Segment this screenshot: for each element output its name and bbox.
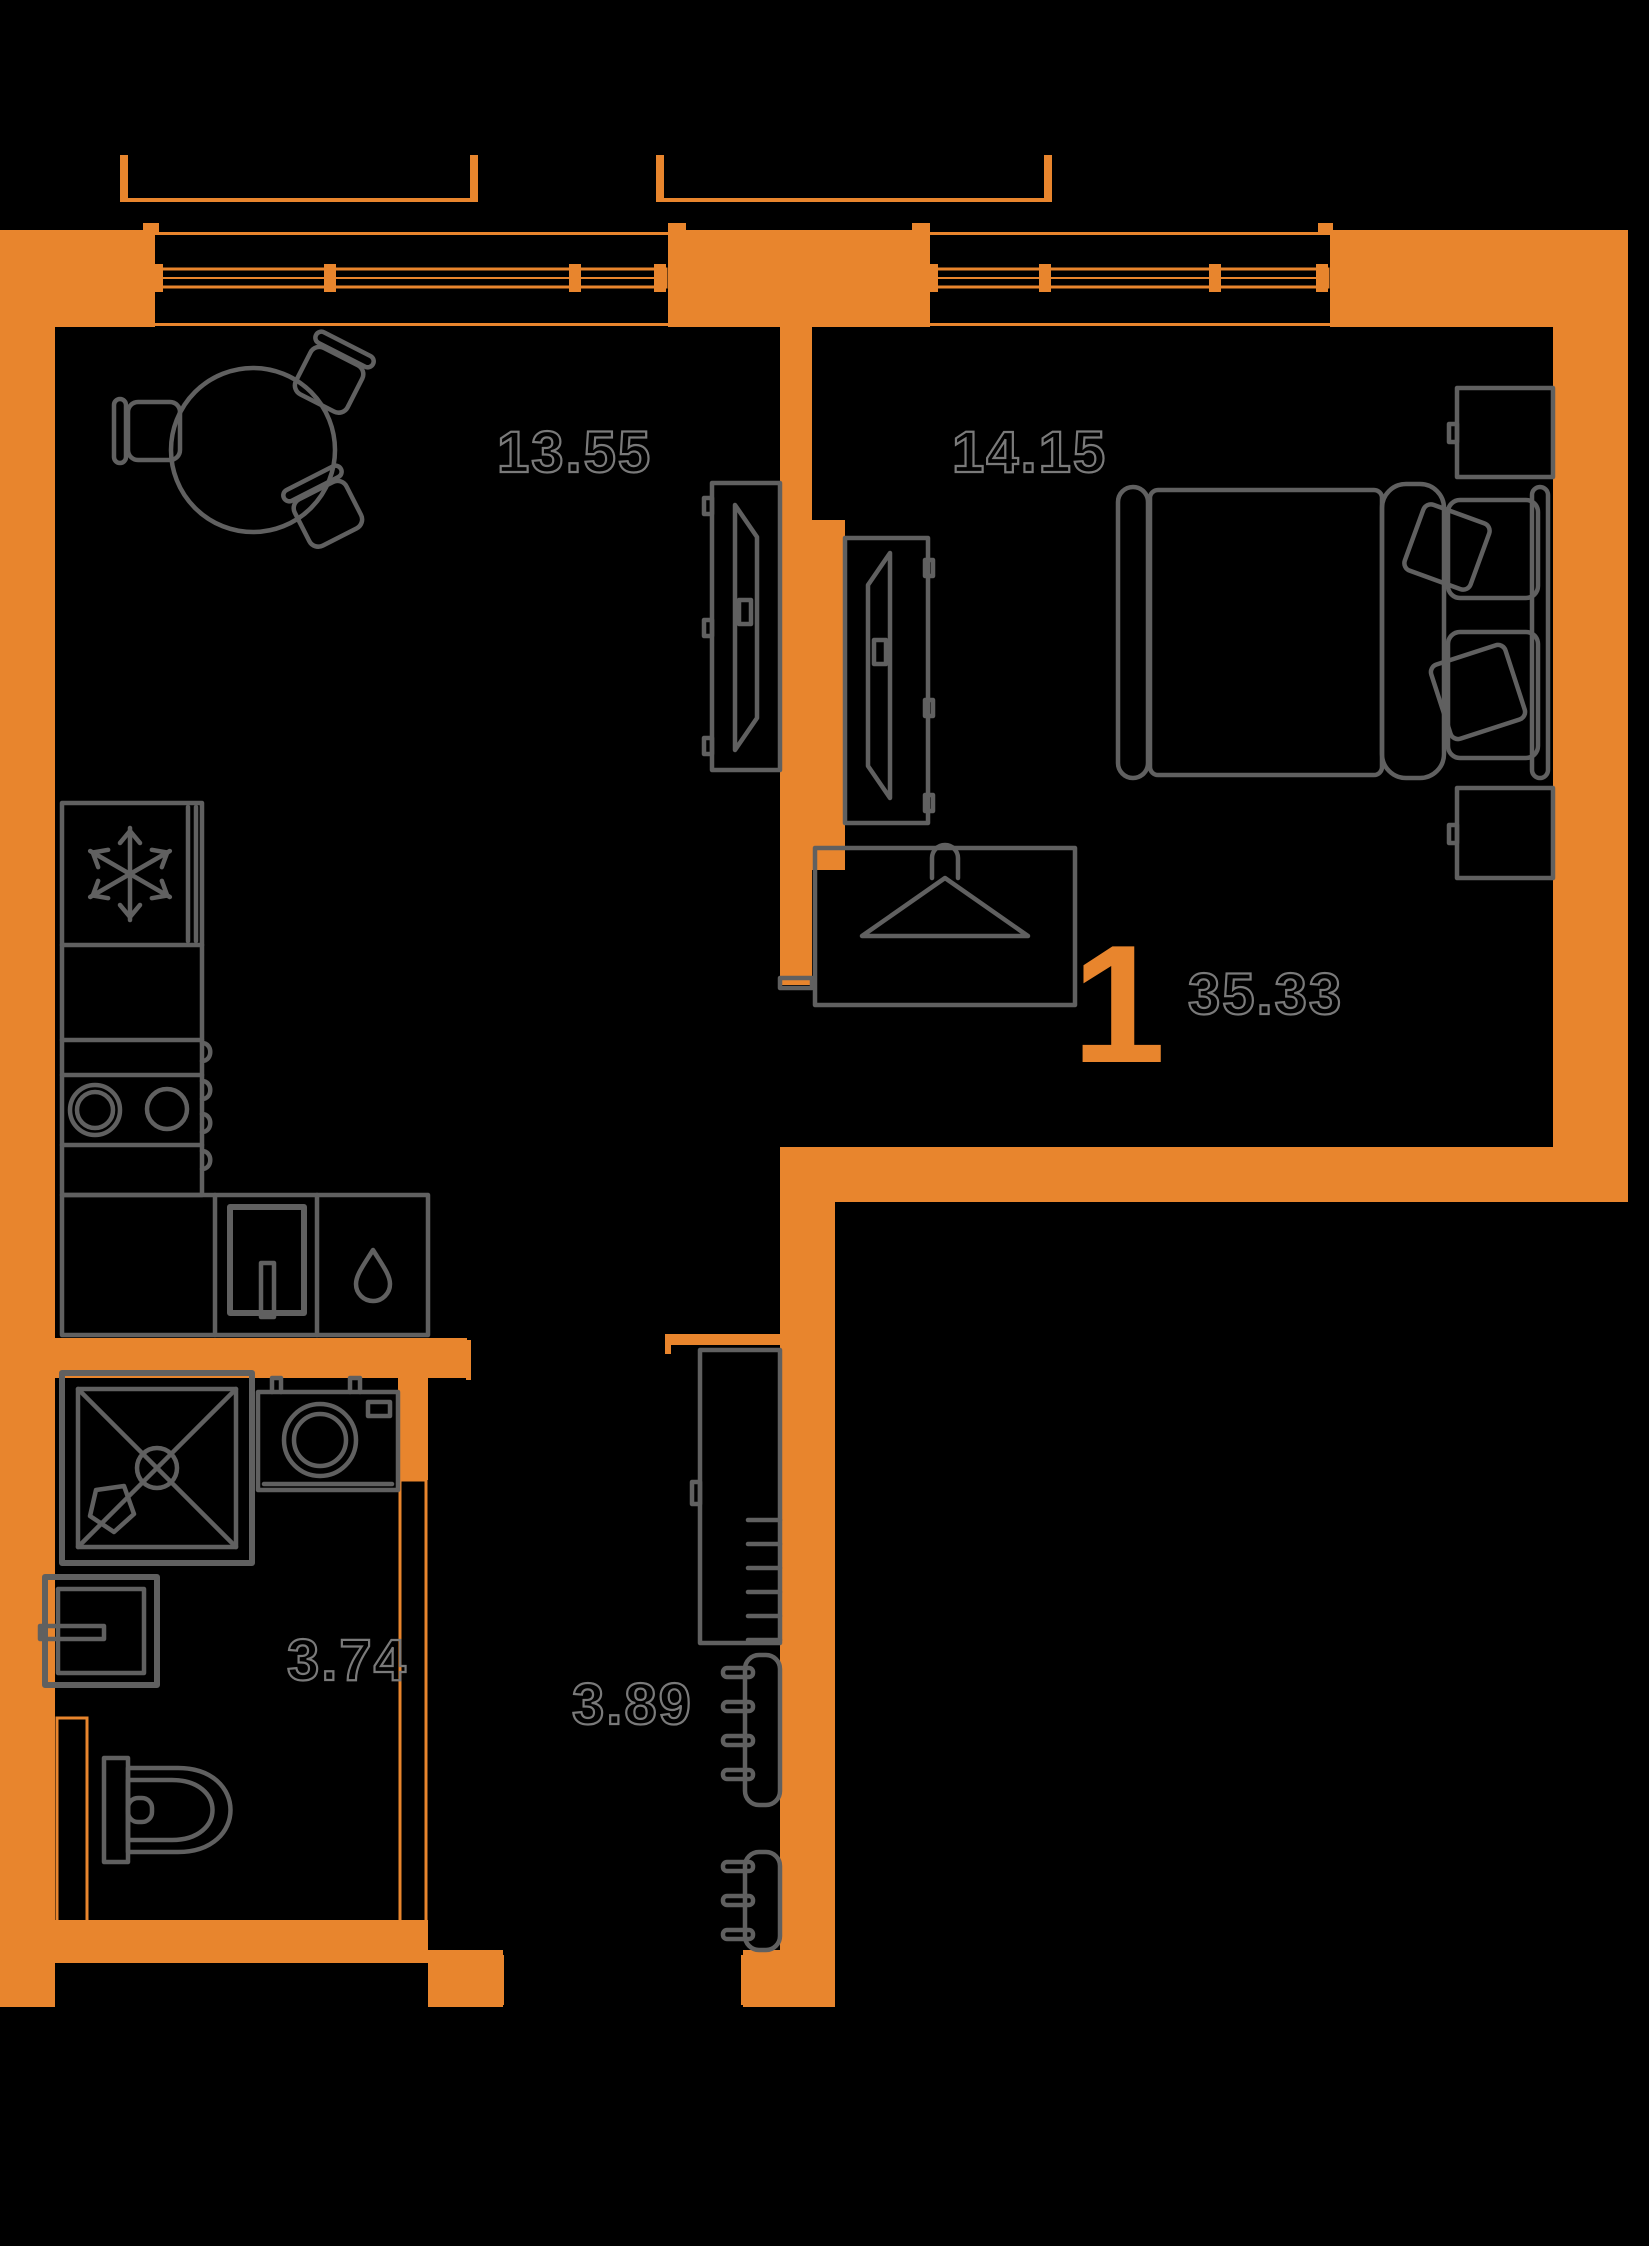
sink-icon	[40, 1577, 157, 1685]
wall-hallway-top-sliver	[667, 1334, 780, 1345]
wall-pier-between-windows	[668, 230, 930, 327]
tv	[735, 505, 757, 750]
shoe-rack-upper	[723, 1655, 780, 1805]
pier-tab-right	[912, 223, 930, 232]
shoe-rack-lower	[723, 1852, 780, 1950]
chair	[281, 464, 368, 552]
wall-bedroom-bottom	[780, 1147, 1628, 1202]
nightstand-top	[1449, 388, 1553, 477]
bathroom-door-leaf	[57, 1718, 87, 1922]
dining-table	[171, 368, 335, 532]
toilet-tank	[104, 1758, 128, 1862]
window-wall-line-outer	[155, 232, 668, 235]
wall-right	[1553, 230, 1628, 1202]
floor-plan: 13.55 14.15 3.74 3.89 35.33 1	[0, 0, 1649, 2246]
bathroom-door	[400, 1480, 426, 1950]
drop-icon	[356, 1250, 390, 1301]
kitchen-furniture	[62, 330, 780, 1335]
washer-icon	[258, 1378, 398, 1490]
wardrobe	[815, 845, 1075, 1005]
facade-tab	[120, 155, 128, 202]
bedroom-tv-unit	[845, 538, 933, 823]
window-wall-line-outer	[930, 232, 1330, 235]
hallway-furniture	[692, 1350, 780, 1950]
wall-bathroom-right-upper	[398, 1345, 428, 1480]
facade-tab	[1044, 155, 1052, 202]
wall-hallway-top-jamb	[665, 1334, 671, 1354]
tv	[868, 553, 890, 798]
toilet-hinge	[128, 1798, 152, 1822]
sink-faucet	[261, 1263, 274, 1317]
wall-left	[0, 230, 55, 2007]
nightstand-bottom	[1449, 788, 1553, 878]
bathroom-fixtures	[40, 1373, 398, 1862]
wall-bottom-right-block	[743, 1950, 835, 2007]
facade-tab	[470, 155, 478, 202]
facade-tab	[656, 155, 664, 202]
wall-corner-top-left	[0, 230, 155, 327]
wall-hallway-right	[780, 1202, 835, 1950]
entrance-door-jamb-right	[741, 1955, 746, 2005]
wall-bottom-left-block	[428, 1950, 503, 2007]
hallway-area-label: 3.89	[572, 1672, 693, 1737]
hallway-closet	[692, 1350, 780, 1643]
wall-partition-wide-section	[780, 520, 845, 870]
room-count-label: 1	[1072, 910, 1165, 1098]
hanger-icon	[862, 845, 1028, 936]
pier-tab-left	[668, 223, 686, 232]
window-wall-line-inner	[930, 323, 1330, 326]
snowflake-icon	[85, 828, 175, 920]
floor-plan-canvas: 13.55 14.15 3.74 3.89 35.33 1	[0, 0, 1649, 2246]
bed-mattress	[1150, 490, 1382, 775]
bedroom-furniture	[780, 388, 1553, 1005]
entrance-door-jamb-left	[499, 1955, 504, 2005]
wall-tab-top-right	[1318, 223, 1333, 232]
toilet-bowl-inner	[128, 1780, 213, 1840]
bed-headboard	[1382, 484, 1444, 778]
wall-bathroom-bottom	[0, 1920, 428, 1963]
kitchen-doorway-jamb	[466, 1340, 471, 1380]
bathroom-area-label: 3.74	[287, 1628, 408, 1693]
facade-line-right	[658, 198, 1052, 202]
window-wall-line-inner	[155, 323, 668, 326]
bedroom-area-label: 14.15	[952, 420, 1107, 485]
toilet-icon	[104, 1758, 231, 1862]
shower-head	[90, 1486, 134, 1532]
stove-burners	[70, 1085, 187, 1135]
wall-tab-top-left	[143, 223, 159, 232]
kitchen-tv-unit	[704, 483, 780, 770]
facade-line-left	[122, 198, 478, 202]
shower-icon	[62, 1373, 252, 1563]
kitchen-window	[151, 264, 666, 292]
bedroom-window	[926, 264, 1328, 292]
chair	[289, 330, 376, 418]
kitchen-area-label: 13.55	[497, 420, 652, 485]
bed	[1118, 484, 1548, 778]
bed-footboard	[1118, 487, 1148, 778]
total-area-label: 35.33	[1188, 962, 1343, 1027]
walls	[0, 223, 1628, 2007]
kitchen-sink	[230, 1207, 304, 1317]
kitchen-counter-column	[62, 803, 210, 1195]
